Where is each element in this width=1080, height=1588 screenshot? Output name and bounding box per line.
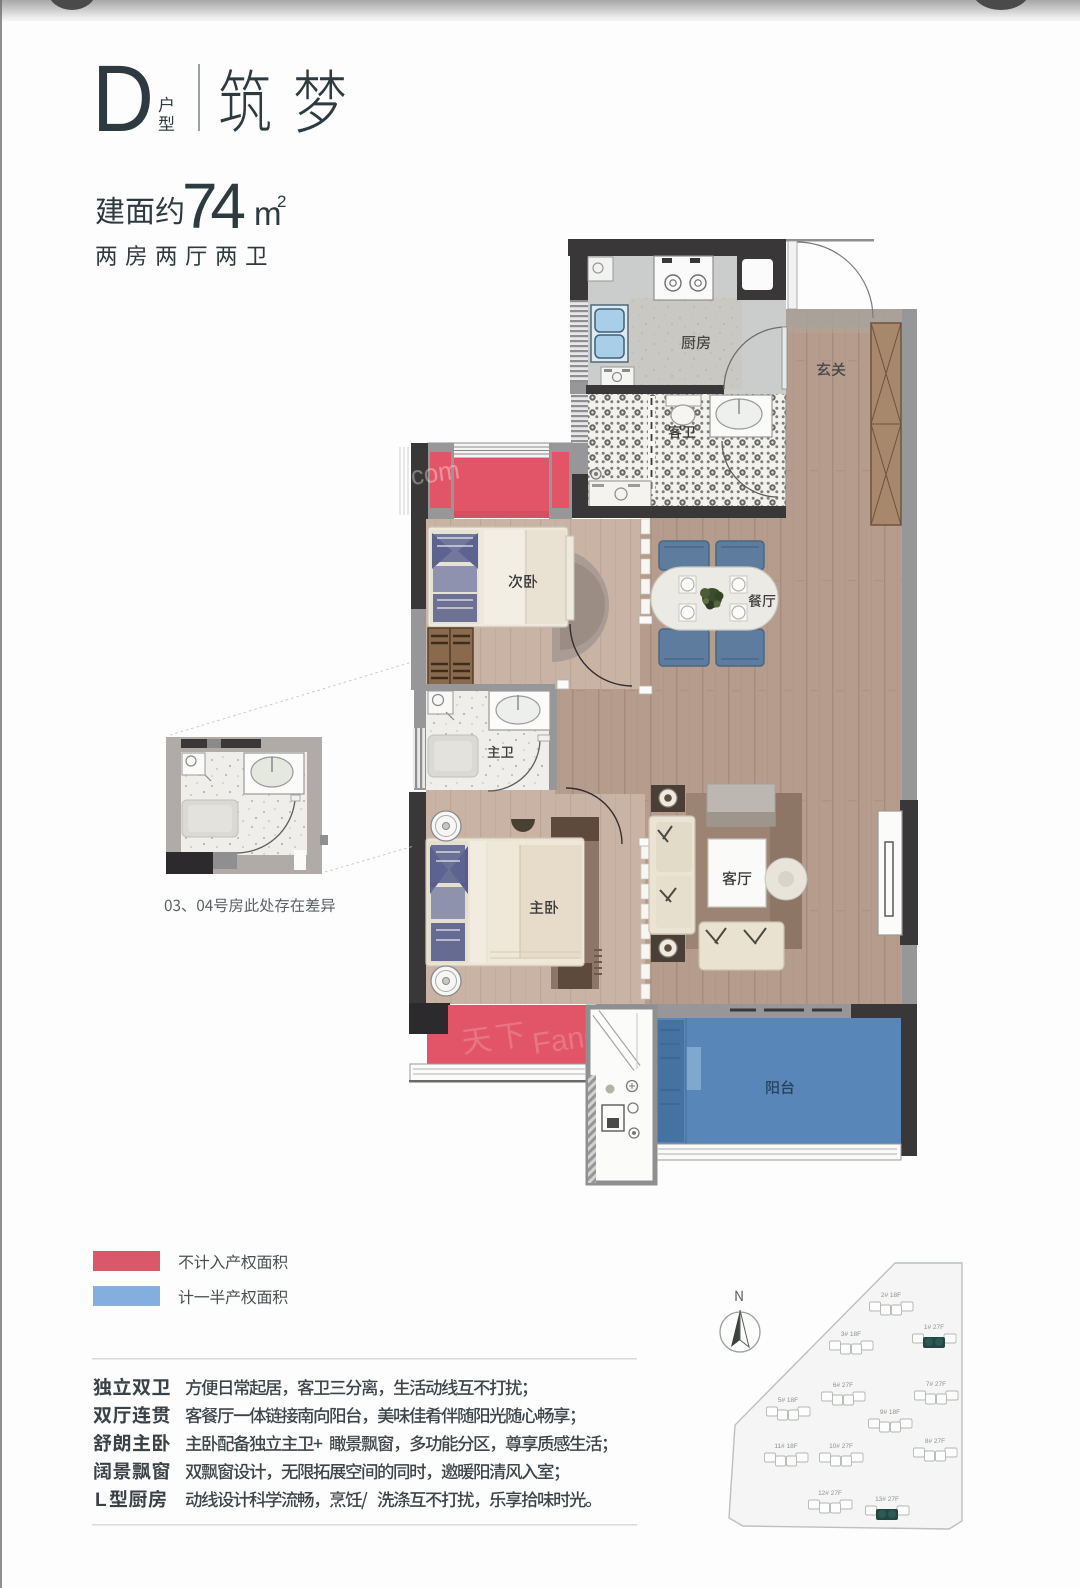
svg-text:11# 18F: 11# 18F [774,1443,797,1450]
svg-text:12# 27F: 12# 27F [818,1490,842,1497]
svg-text:1# 27F: 1# 27F [924,1324,944,1331]
svg-text:13# 27F: 13# 27F [875,1496,899,1503]
svg-text:5# 18F: 5# 18F [778,1397,798,1404]
svg-text:7# 27F: 7# 27F [926,1381,946,1388]
svg-text:6# 27F: 6# 27F [833,1382,853,1389]
svg-text:3# 18F: 3# 18F [841,1331,861,1338]
svg-text:8# 27F: 8# 27F [925,1438,945,1445]
svg-text:D: D [92,46,154,152]
svg-text:9# 18F: 9# 18F [880,1409,900,1416]
svg-text:2: 2 [277,192,286,211]
svg-text:10# 27F: 10# 27F [829,1443,853,1450]
svg-text:2# 18F: 2# 18F [881,1292,901,1299]
svg-text:74: 74 [182,170,244,242]
svg-text:L: L [95,1490,107,1511]
